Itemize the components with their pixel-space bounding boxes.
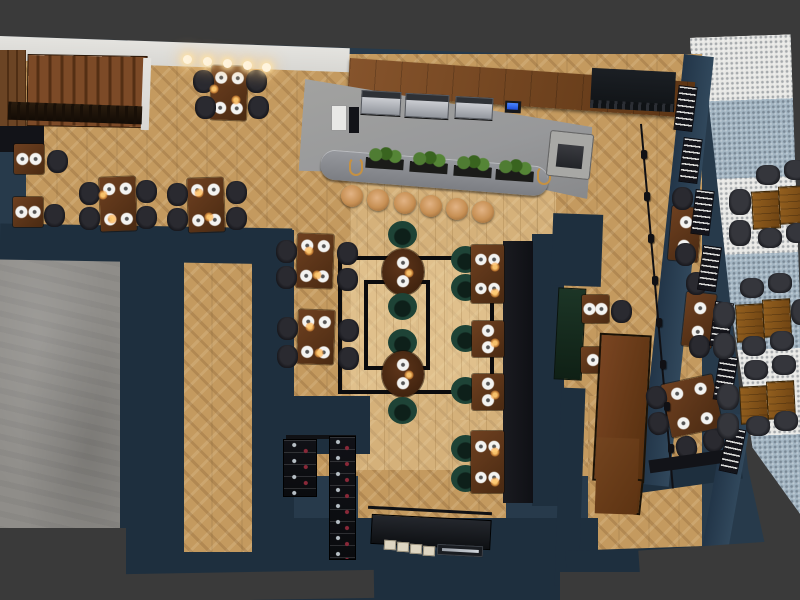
banquette-table-2top xyxy=(472,321,504,357)
candle xyxy=(312,270,322,280)
black-chair xyxy=(79,207,100,230)
teal-tub-chair xyxy=(388,397,417,424)
black-chair xyxy=(689,335,710,358)
wall-light xyxy=(641,150,647,159)
candle xyxy=(490,262,500,272)
teal-tub-chair xyxy=(388,293,417,320)
black-chair xyxy=(276,266,297,289)
candle xyxy=(305,322,315,332)
candle xyxy=(204,212,214,222)
candle xyxy=(490,338,500,348)
candle xyxy=(490,447,500,457)
string-light-bulb xyxy=(183,55,192,64)
espresso-machine xyxy=(360,90,401,116)
brass-rail xyxy=(349,157,363,176)
black-chair xyxy=(276,240,297,263)
candle xyxy=(404,268,414,278)
outdoor-chair xyxy=(746,416,770,436)
black-chair xyxy=(167,208,188,231)
outdoor-chair xyxy=(758,228,782,248)
outdoor-chair xyxy=(740,278,764,298)
outdoor-chair xyxy=(729,220,751,246)
bar-stool xyxy=(367,189,389,211)
teal-tub-chair xyxy=(388,221,417,248)
wall-light xyxy=(668,444,674,453)
candle xyxy=(98,190,108,200)
wall-table-2top xyxy=(13,197,43,227)
dining-table-4top xyxy=(187,177,225,232)
black-chair xyxy=(79,182,100,205)
string-light-bulb xyxy=(243,61,252,70)
candle xyxy=(490,288,500,298)
black-chair xyxy=(167,183,188,206)
wall-light xyxy=(644,192,650,201)
candle xyxy=(490,390,500,400)
bar-stool xyxy=(394,192,416,214)
candle xyxy=(314,348,324,358)
black-chair xyxy=(675,243,696,266)
furniture-layer xyxy=(0,0,800,600)
beer-tap-unit xyxy=(454,96,493,120)
black-chair xyxy=(338,347,359,370)
candle xyxy=(194,188,204,198)
outdoor-chair xyxy=(768,273,792,293)
menu-card xyxy=(423,546,436,557)
striped-bench xyxy=(690,189,714,236)
candle xyxy=(404,370,414,380)
wall-light xyxy=(660,360,666,369)
black-chair xyxy=(337,242,358,265)
wall-light xyxy=(656,318,662,327)
black-chair xyxy=(195,96,216,119)
black-chair xyxy=(338,319,359,342)
string-light-bulb xyxy=(203,57,212,66)
dining-table-4top xyxy=(296,233,334,288)
planter-box xyxy=(365,146,404,171)
outdoor-chair xyxy=(786,223,800,243)
black-chair xyxy=(611,300,632,323)
outdoor-chair xyxy=(713,333,735,359)
candle xyxy=(490,477,500,487)
black-chair xyxy=(246,70,267,93)
wine-cabinet xyxy=(283,439,317,497)
floorplan-render xyxy=(0,0,800,600)
black-chair xyxy=(277,345,298,368)
striped-bench xyxy=(673,85,697,132)
black-chair xyxy=(226,207,247,230)
wall-light xyxy=(664,402,670,411)
outdoor-table xyxy=(779,186,800,223)
menu-card xyxy=(397,542,410,553)
bar-sink xyxy=(331,105,347,131)
round-table xyxy=(382,249,424,295)
black-chair xyxy=(136,206,157,229)
espresso-machine xyxy=(404,93,449,119)
outdoor-chair xyxy=(784,160,800,180)
string-light-bulb xyxy=(223,59,232,68)
bar-stool xyxy=(420,195,442,217)
service-hatch xyxy=(547,131,593,179)
bar-stool xyxy=(472,201,494,223)
outdoor-chair xyxy=(742,336,766,356)
candle xyxy=(107,214,117,224)
menu-card xyxy=(410,544,423,555)
black-chair xyxy=(136,180,157,203)
outdoor-chair xyxy=(744,360,768,380)
outdoor-chair xyxy=(770,331,794,351)
bar-stool xyxy=(446,198,468,220)
menu-card xyxy=(384,540,397,551)
door-mat xyxy=(595,437,640,514)
outdoor-chair xyxy=(717,384,739,410)
wine-rack xyxy=(329,436,356,560)
round-table xyxy=(382,351,424,397)
black-chair xyxy=(248,96,269,119)
string-light-bulb xyxy=(262,63,271,72)
outdoor-chair xyxy=(791,299,800,325)
outdoor-chair xyxy=(729,189,751,215)
outdoor-chair xyxy=(772,355,796,375)
wall-light xyxy=(652,276,658,285)
black-chair xyxy=(226,181,247,204)
striped-bench xyxy=(697,245,722,292)
outdoor-chair xyxy=(756,165,780,185)
banquette-table-2top xyxy=(582,295,609,323)
outdoor-chair xyxy=(774,411,798,431)
black-chair xyxy=(337,268,358,291)
black-chair xyxy=(672,187,693,210)
planter-box xyxy=(453,154,492,179)
black-banquette xyxy=(503,241,533,503)
candle xyxy=(209,84,219,94)
pos-screen xyxy=(505,101,522,114)
planter-box xyxy=(495,158,534,183)
outdoor-chair xyxy=(717,413,739,439)
cutlery-tray xyxy=(437,544,484,557)
outdoor-table xyxy=(752,191,780,228)
black-chair xyxy=(277,317,298,340)
black-chair xyxy=(47,150,68,173)
planter-box xyxy=(409,150,448,175)
bar-well xyxy=(349,107,359,133)
bar-stool xyxy=(341,185,363,207)
candle xyxy=(231,95,241,105)
wall-table-2top xyxy=(14,144,44,174)
outdoor-chair xyxy=(713,302,735,328)
black-chair xyxy=(44,204,65,227)
striped-bench xyxy=(678,137,702,184)
wall-light xyxy=(648,234,654,243)
dining-table-4top xyxy=(99,176,137,231)
candle xyxy=(304,246,314,256)
kitchen-pass-counter xyxy=(590,68,676,112)
